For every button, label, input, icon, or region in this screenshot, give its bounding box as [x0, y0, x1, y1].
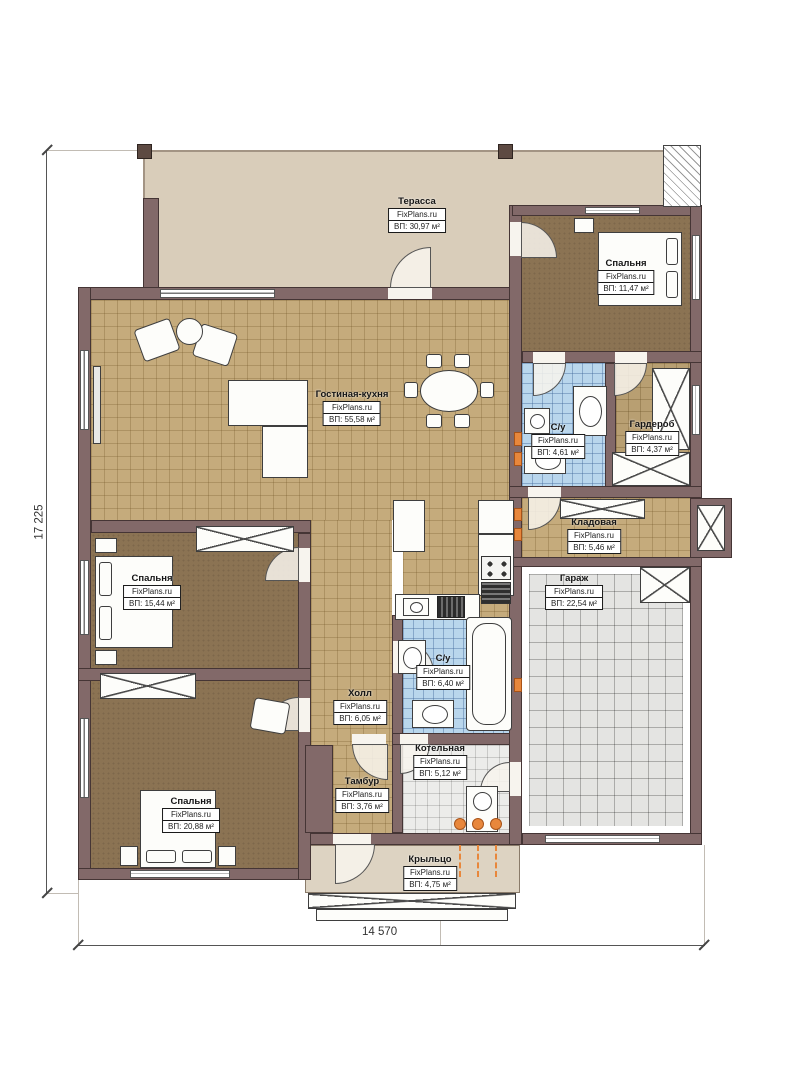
- room-area: ВП: 22,54 м²: [546, 598, 602, 609]
- room-name: Котельная: [415, 743, 465, 754]
- porch-step: [316, 909, 508, 921]
- watermark: FixPlans.ru: [532, 435, 584, 447]
- door-opening: [533, 352, 565, 363]
- room-name: Спальня: [170, 796, 211, 807]
- dimension-width: 14 570: [362, 926, 397, 938]
- pillow: [666, 238, 678, 265]
- dining-table: [420, 370, 478, 412]
- room-label-wardrobe-room: Гардероб FixPlans.ru ВП: 4,37 м²: [625, 419, 679, 456]
- room-label-living-kitchen: Гостиная-кухня FixPlans.ru ВП: 55,58 м²: [316, 389, 389, 426]
- extension-line: [704, 845, 705, 945]
- watermark: FixPlans.ru: [163, 809, 219, 821]
- nightstand: [574, 218, 594, 233]
- terrace-column: [137, 144, 152, 159]
- coffee-table: [176, 318, 203, 345]
- window: [80, 560, 89, 635]
- dining-chair: [480, 382, 494, 398]
- room-label-vestibule: Тамбур FixPlans.ru ВП: 3,76 м²: [335, 776, 389, 813]
- room-name: Спальня: [131, 573, 172, 584]
- chimney-block: [663, 145, 701, 207]
- door-opening: [615, 352, 647, 363]
- pillow: [99, 606, 112, 640]
- nightstand: [120, 846, 138, 866]
- room-label-bedroom-left: Спальня FixPlans.ru ВП: 15,44 м²: [123, 573, 181, 610]
- dining-chair: [404, 382, 418, 398]
- window: [692, 235, 700, 300]
- room-area: ВП: 15,44 м²: [124, 598, 180, 609]
- extension-line: [78, 880, 79, 945]
- room-label-porch: Крыльцо FixPlans.ru ВП: 4,75 м²: [403, 854, 457, 891]
- door-opening: [510, 762, 521, 796]
- extension-line: [440, 921, 441, 945]
- bathtub: [466, 617, 512, 731]
- heating-pipe-line: [477, 845, 479, 877]
- wardrobe: [612, 452, 690, 486]
- watermark: FixPlans.ru: [404, 867, 456, 879]
- extension-line: [46, 893, 78, 894]
- room-name: Терасса: [398, 196, 436, 207]
- watermark: FixPlans.ru: [598, 271, 653, 283]
- room-name: Холл: [348, 688, 372, 699]
- room-label-terrace: Терасса FixPlans.ru ВП: 30,97 м²: [388, 196, 446, 233]
- dining-chair: [454, 354, 470, 368]
- room-area: ВП: 3,76 м²: [336, 801, 388, 812]
- watermark: FixPlans.ru: [414, 756, 466, 768]
- watermark: FixPlans.ru: [417, 666, 469, 678]
- nightstand: [95, 650, 117, 665]
- fridge: [478, 500, 514, 534]
- door-opening: [352, 734, 386, 744]
- room-label-bedroom-top-right: Спальня FixPlans.ru ВП: 11,47 м²: [597, 258, 654, 295]
- watermark: FixPlans.ru: [324, 402, 380, 414]
- dining-chair: [454, 414, 470, 428]
- door-opening: [299, 548, 310, 582]
- stove: [481, 556, 511, 580]
- dining-chair: [426, 414, 442, 428]
- watermark: FixPlans.ru: [626, 432, 678, 444]
- kitchen-sink: [403, 598, 429, 616]
- toilet: [412, 700, 454, 728]
- radiator: [514, 452, 522, 466]
- pillow: [99, 562, 112, 596]
- pillow: [182, 850, 212, 863]
- nightstand: [218, 846, 236, 866]
- heating-pipe: [454, 818, 466, 830]
- porch-step: [308, 893, 516, 909]
- wall: [78, 287, 522, 300]
- radiator: [514, 528, 522, 541]
- heating-pipe: [472, 818, 484, 830]
- room-label-boiler-room: Котельная FixPlans.ru ВП: 5,12 м²: [413, 743, 467, 780]
- terrace-column: [498, 144, 513, 159]
- radiator: [514, 432, 522, 446]
- armchair: [249, 697, 290, 735]
- room-area: ВП: 5,46 м²: [568, 542, 620, 553]
- watermark: FixPlans.ru: [568, 530, 620, 542]
- wardrobe: [100, 673, 196, 699]
- nightstand: [95, 538, 117, 553]
- window: [585, 207, 640, 214]
- wall: [305, 745, 333, 833]
- room-label-bedroom-bottom: Спальня FixPlans.ru ВП: 20,88 м²: [162, 796, 220, 833]
- roof-edge-line: [143, 150, 692, 152]
- kitchen-island: [393, 500, 425, 552]
- oven: [481, 582, 511, 604]
- floor-terrace: [143, 152, 512, 287]
- watermark: FixPlans.ru: [546, 586, 602, 598]
- door-opening: [299, 698, 310, 732]
- dimension-line-vertical: [46, 150, 47, 893]
- door-opening: [510, 222, 521, 256]
- radiator: [514, 678, 522, 692]
- heating-pipe-line: [495, 845, 497, 877]
- dish-drainer: [437, 596, 465, 618]
- room-name: С/у: [551, 422, 566, 433]
- room-area: ВП: 4,37 м²: [626, 444, 678, 455]
- wall: [143, 198, 159, 290]
- room-name: Кладовая: [571, 517, 617, 528]
- room-area: ВП: 4,75 м²: [404, 879, 456, 890]
- extension-line: [46, 150, 143, 151]
- window: [80, 718, 89, 798]
- heating-pipe-line: [459, 845, 461, 877]
- radiator: [514, 508, 522, 521]
- pillow: [666, 271, 678, 298]
- dining-chair: [426, 354, 442, 368]
- shelving: [560, 499, 645, 519]
- floor-garage: [529, 574, 683, 826]
- room-label-bathroom-top: С/у FixPlans.ru ВП: 4,61 м²: [531, 422, 585, 459]
- watermark: FixPlans.ru: [334, 701, 386, 713]
- room-area: ВП: 30,97 м²: [389, 221, 445, 232]
- room-name: Тамбур: [345, 776, 379, 787]
- watermark: FixPlans.ru: [389, 209, 445, 221]
- room-label-bathroom-main: С/у FixPlans.ru ВП: 6,40 м²: [416, 653, 470, 690]
- dimension-line-horizontal: [78, 945, 705, 946]
- pillow: [146, 850, 176, 863]
- wall: [509, 557, 702, 567]
- window: [160, 289, 275, 298]
- room-name: Гараж: [560, 573, 588, 584]
- room-label-hall: Холл FixPlans.ru ВП: 6,05 м²: [333, 688, 387, 725]
- watermark: FixPlans.ru: [124, 586, 180, 598]
- room-area: ВП: 11,47 м²: [598, 283, 653, 294]
- sofa: [228, 380, 308, 426]
- tv-panel: [93, 366, 101, 444]
- room-label-storage: Кладовая FixPlans.ru ВП: 5,46 м²: [567, 517, 621, 554]
- room-name: С/у: [436, 653, 451, 664]
- garage-gate: [545, 835, 660, 843]
- door-opening: [388, 288, 432, 299]
- window: [80, 350, 89, 430]
- window: [130, 870, 230, 878]
- heating-pipe: [490, 818, 502, 830]
- shelving: [640, 567, 690, 603]
- watermark: FixPlans.ru: [336, 789, 388, 801]
- room-label-garage: Гараж FixPlans.ru ВП: 22,54 м²: [545, 573, 603, 610]
- room-name: Гостиная-кухня: [316, 389, 389, 400]
- door-opening: [528, 487, 561, 497]
- room-name: Спальня: [605, 258, 646, 269]
- bay-hatch: [697, 505, 725, 551]
- dimension-height: 17 225: [34, 504, 46, 539]
- floor-plan: Терасса FixPlans.ru ВП: 30,97 м² Спальня…: [0, 0, 792, 1080]
- window: [692, 385, 700, 435]
- room-name: Гардероб: [630, 419, 675, 430]
- sofa: [262, 426, 308, 478]
- room-area: ВП: 4,61 м²: [532, 447, 584, 458]
- door-opening: [333, 834, 371, 844]
- room-area: ВП: 6,05 м²: [334, 713, 386, 724]
- wardrobe: [196, 526, 294, 552]
- room-area: ВП: 20,88 м²: [163, 821, 219, 832]
- room-area: ВП: 6,40 м²: [417, 678, 469, 689]
- room-name: Крыльцо: [408, 854, 451, 865]
- room-area: ВП: 55,58 м²: [324, 414, 380, 425]
- room-area: ВП: 5,12 м²: [414, 768, 466, 779]
